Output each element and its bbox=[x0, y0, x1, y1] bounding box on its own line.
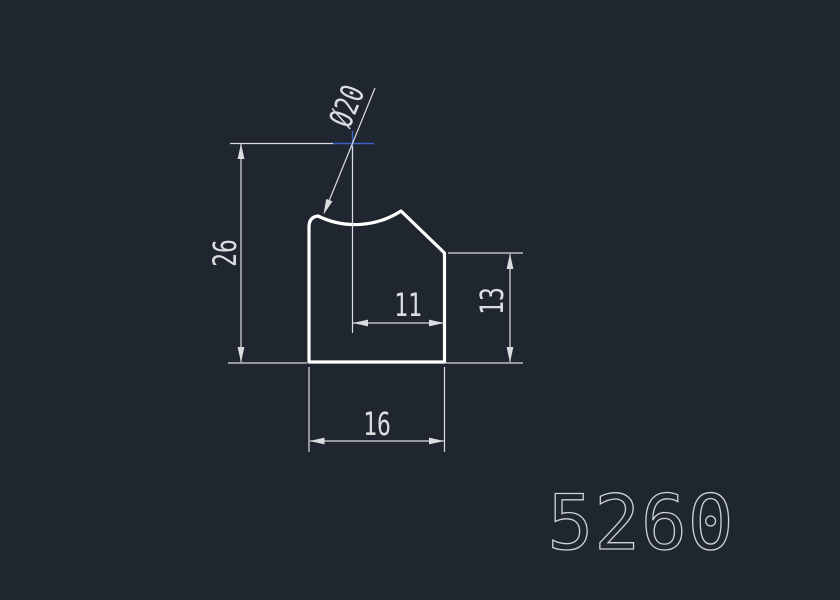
arrowhead-up bbox=[238, 144, 245, 160]
arrowhead-left bbox=[353, 320, 368, 327]
profile-outline bbox=[309, 211, 445, 362]
dim-label-bottom-width: 16 bbox=[363, 408, 391, 440]
dim-label-top-width: 11 bbox=[394, 289, 422, 321]
part-number: 5260 bbox=[547, 485, 734, 561]
dim-label-right-height: 13 bbox=[476, 287, 508, 315]
arrowhead-right bbox=[429, 320, 444, 327]
arrowhead-left bbox=[309, 438, 324, 445]
profile-outline-path bbox=[309, 211, 445, 362]
drawing-canvas[interactable]: 26 13 11 16 Ø20 5260 bbox=[0, 0, 840, 600]
arrowhead-down bbox=[507, 347, 514, 363]
dim-label-overall-height: 26 bbox=[209, 239, 241, 267]
arrowhead-up bbox=[507, 254, 514, 270]
leader-arrowhead bbox=[324, 199, 333, 215]
arrowhead-down bbox=[238, 347, 245, 363]
arrowhead-right bbox=[429, 438, 444, 445]
